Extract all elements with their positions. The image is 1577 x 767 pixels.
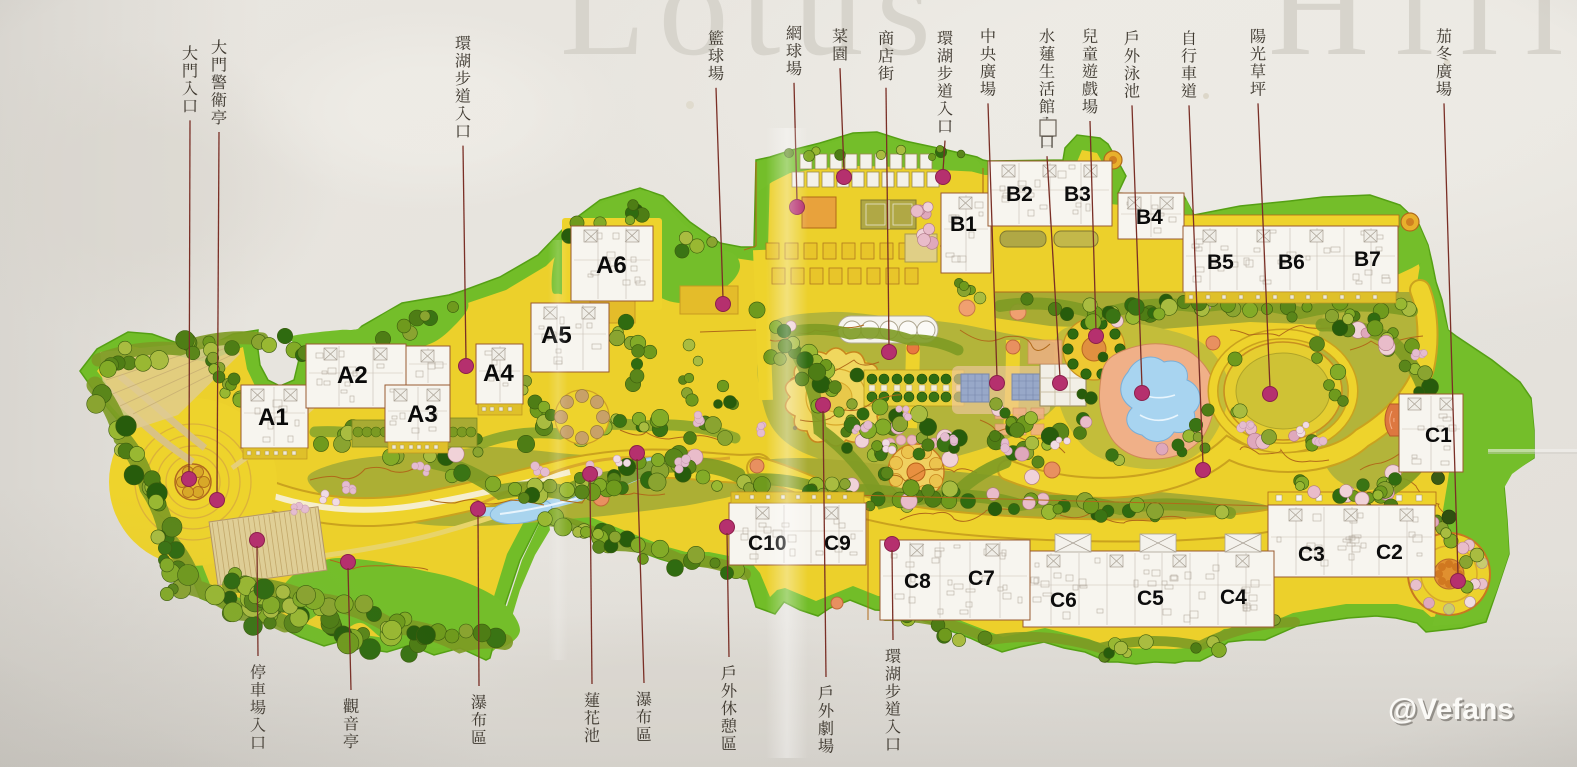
svg-text:@Vefans: @Vefans [1388,693,1514,726]
